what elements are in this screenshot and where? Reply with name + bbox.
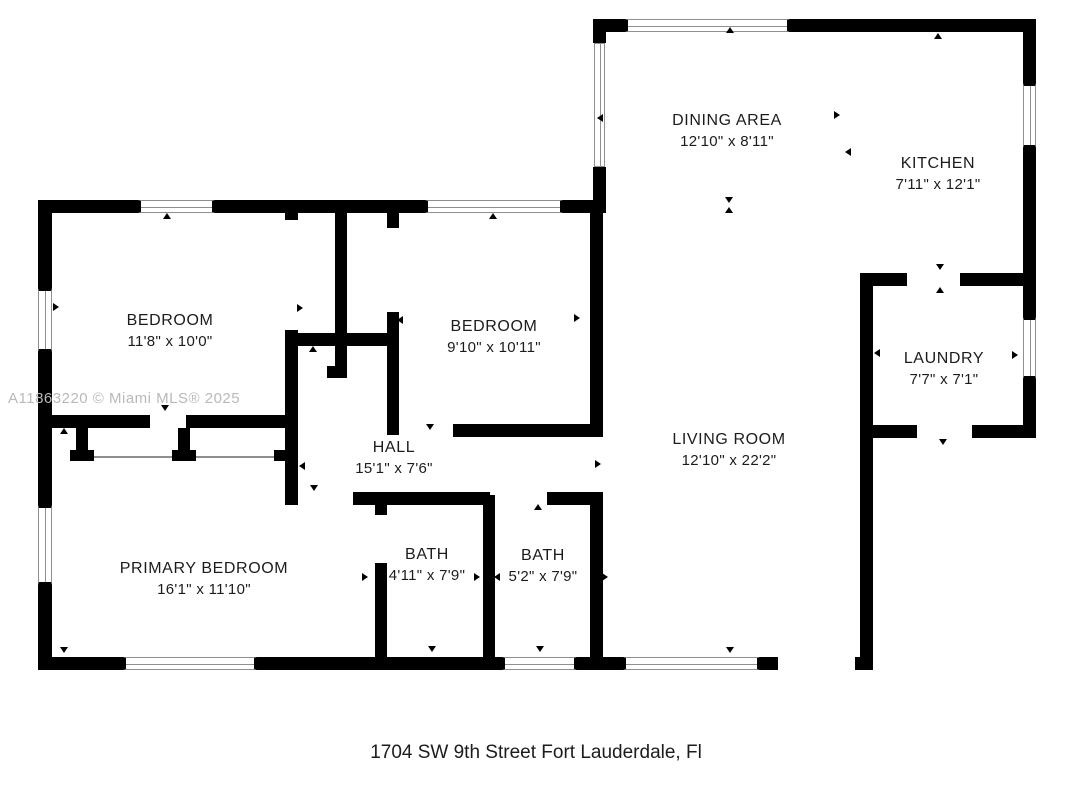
wall — [38, 200, 52, 288]
room-name: BATH — [509, 547, 578, 565]
closet-partition — [70, 450, 94, 461]
door-arrow-left-icon — [597, 114, 603, 122]
window — [38, 505, 52, 585]
window — [625, 19, 790, 32]
door-arrow-left-icon — [874, 349, 880, 357]
room-dims: 9'10" x 10'11" — [447, 339, 541, 356]
door-arrow-right-icon — [53, 303, 59, 311]
room-dims: 7'7" x 7'1" — [904, 371, 984, 388]
door-arrow-left-icon — [299, 462, 305, 470]
room-name: LIVING ROOM — [672, 431, 785, 449]
wall — [38, 352, 52, 505]
room-dims: 16'1" x 11'10" — [120, 581, 288, 598]
wall — [960, 273, 1036, 286]
door-arrow-up-icon — [163, 213, 171, 219]
wall — [860, 273, 873, 670]
wall — [387, 312, 399, 435]
room-dims: 4'11" x 7'9" — [389, 567, 465, 584]
door-arrow-up-icon — [726, 27, 734, 33]
window — [1023, 317, 1036, 379]
door-arrow-right-icon — [297, 304, 303, 312]
room-label-primary-bedroom: PRIMARY BEDROOM 16'1" x 11'10" — [120, 560, 288, 598]
wall — [1023, 148, 1036, 317]
wall — [38, 415, 150, 428]
window — [38, 288, 52, 352]
mls-watermark: A11863220 © Miami MLS® 2025 — [8, 390, 240, 407]
wall — [563, 200, 606, 213]
wall — [972, 425, 1036, 438]
glass-wall — [594, 43, 605, 167]
wall — [285, 200, 298, 220]
closet-partition — [76, 428, 88, 452]
room-name: BEDROOM — [447, 318, 541, 336]
door-arrow-up-icon — [936, 287, 944, 293]
door-arrow-down-icon — [428, 646, 436, 652]
floor-plan-canvas: DINING AREA 12'10" x 8'11" KITCHEN 7'11"… — [0, 0, 1072, 804]
door-arrow-up-icon — [489, 213, 497, 219]
room-dims: 11'8" x 10'0" — [127, 333, 214, 350]
wall — [257, 657, 502, 670]
room-dims: 15'1" x 7'6" — [355, 460, 433, 477]
wall — [790, 19, 1036, 32]
room-dims: 5'2" x 7'9" — [509, 568, 578, 585]
wall — [335, 213, 347, 366]
room-label-bedroom-middle: BEDROOM 9'10" x 10'11" — [447, 318, 541, 356]
door-arrow-right-icon — [362, 573, 368, 581]
room-dims: 7'11" x 12'1" — [895, 176, 980, 193]
room-label-hall: HALL 15'1" x 7'6" — [355, 439, 433, 477]
room-label-bedroom-left: BEDROOM 11'8" x 10'0" — [127, 312, 214, 350]
window — [138, 200, 215, 213]
door-arrow-down-icon — [310, 485, 318, 491]
wall — [38, 200, 138, 213]
wall — [38, 657, 123, 670]
door-arrow-down-icon — [939, 439, 947, 445]
closet-partition — [274, 450, 298, 461]
closet-rod-line — [94, 456, 172, 458]
room-label-bath-2: BATH 5'2" x 7'9" — [509, 547, 578, 585]
door-arrow-right-icon — [574, 314, 580, 322]
wall — [387, 213, 399, 228]
door-arrow-left-icon — [494, 573, 500, 581]
wall — [590, 213, 603, 430]
closet-rod-line — [196, 456, 274, 458]
door-arrow-right-icon — [595, 460, 601, 468]
door-arrow-right-icon — [602, 573, 608, 581]
wall — [327, 366, 347, 378]
room-name: DINING AREA — [672, 112, 782, 130]
door-arrow-up-icon — [534, 504, 542, 510]
closet-partition — [178, 428, 190, 452]
address-caption: 1704 SW 9th Street Fort Lauderdale, Fl — [0, 742, 1072, 764]
wall — [855, 657, 873, 670]
door-arrow-down-icon — [936, 264, 944, 270]
room-label-laundry: LAUNDRY 7'7" x 7'1" — [904, 350, 984, 388]
room-label-dining-area: DINING AREA 12'10" x 8'11" — [672, 112, 782, 150]
door-arrow-right-icon — [474, 573, 480, 581]
room-name: PRIMARY BEDROOM — [120, 560, 288, 578]
window — [623, 657, 760, 670]
door-arrow-right-icon — [834, 111, 840, 119]
door-arrow-down-icon — [725, 197, 733, 203]
wall — [215, 200, 425, 213]
door-arrow-down-icon — [536, 646, 544, 652]
window — [502, 657, 577, 670]
wall — [453, 424, 603, 437]
door-arrow-up-icon — [60, 428, 68, 434]
room-dims: 12'10" x 22'2" — [672, 452, 785, 469]
closet-partition — [172, 450, 196, 461]
wall — [593, 19, 606, 43]
door-arrow-down-icon — [726, 647, 734, 653]
wall — [873, 425, 917, 438]
wall — [186, 415, 298, 428]
room-name: BATH — [389, 546, 465, 564]
door-arrow-left-icon — [397, 316, 403, 324]
wall — [547, 492, 603, 505]
wall — [353, 492, 490, 505]
door-arrow-down-icon — [60, 647, 68, 653]
room-dims: 12'10" x 8'11" — [672, 133, 782, 150]
room-name: HALL — [355, 439, 433, 457]
room-name: KITCHEN — [895, 155, 980, 173]
room-label-kitchen: KITCHEN 7'11" x 12'1" — [895, 155, 980, 193]
door-arrow-up-icon — [725, 207, 733, 213]
room-label-living-room: LIVING ROOM 12'10" x 22'2" — [672, 431, 785, 469]
window — [123, 657, 257, 670]
wall — [760, 657, 778, 670]
wall — [375, 505, 387, 515]
window — [1023, 83, 1036, 148]
door-arrow-up-icon — [934, 33, 942, 39]
room-name: LAUNDRY — [904, 350, 984, 368]
window — [425, 200, 563, 213]
wall — [375, 563, 387, 657]
door-arrow-right-icon — [1012, 351, 1018, 359]
wall — [577, 657, 623, 670]
room-name: BEDROOM — [127, 312, 214, 330]
door-arrow-down-icon — [426, 424, 434, 430]
room-label-bath-1: BATH 4'11" x 7'9" — [389, 546, 465, 584]
door-arrow-left-icon — [845, 148, 851, 156]
wall — [1023, 19, 1036, 83]
door-arrow-up-icon — [309, 346, 317, 352]
